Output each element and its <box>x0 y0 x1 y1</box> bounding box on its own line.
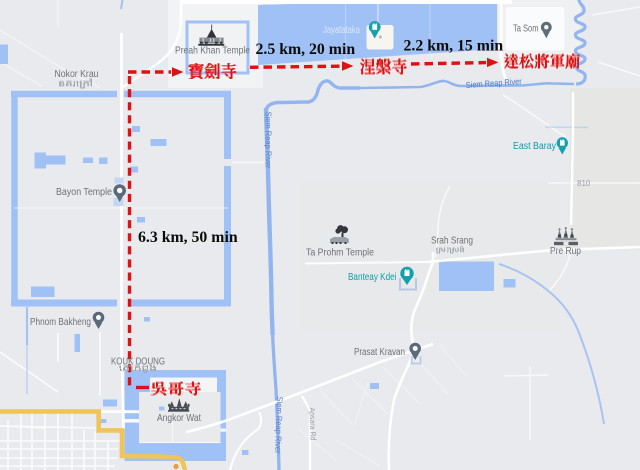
svg-text:2.2 km, 15 min: 2.2 km, 15 min <box>404 38 504 55</box>
svg-text:Preah Khan Temple: Preah Khan Temple <box>175 46 250 57</box>
svg-text:Apsara Rd: Apsara Rd <box>307 407 317 440</box>
svg-text:Siem Reap River: Siem Reap River <box>264 112 274 169</box>
svg-text:Siem Reap River: Siem Reap River <box>273 396 285 453</box>
svg-text:6.3 km, 50 min: 6.3 km, 50 min <box>138 229 238 246</box>
svg-text:Srah Srang: Srah Srang <box>431 236 473 247</box>
svg-text:Prasat Kravan: Prasat Kravan <box>354 347 405 358</box>
svg-text:Nokor Krau: Nokor Krau <box>55 69 99 80</box>
svg-text:Ta Som: Ta Som <box>513 24 539 35</box>
svg-text:East Baray: East Baray <box>513 141 556 152</box>
svg-text:Angkor Wat: Angkor Wat <box>157 413 201 424</box>
svg-text:2.5 km, 20 min: 2.5 km, 20 min <box>256 41 356 58</box>
svg-text:Jayatataka: Jayatataka <box>323 25 360 36</box>
svg-text:Banteay Kdei: Banteay Kdei <box>348 272 397 283</box>
svg-text:Phnom Bakheng: Phnom Bakheng <box>30 317 91 328</box>
svg-text:Bayon Temple: Bayon Temple <box>56 187 112 198</box>
svg-text:810: 810 <box>577 179 591 188</box>
svg-text:Pre Rup: Pre Rup <box>550 246 581 257</box>
svg-text:Ta Prohm Temple: Ta Prohm Temple <box>306 248 374 259</box>
